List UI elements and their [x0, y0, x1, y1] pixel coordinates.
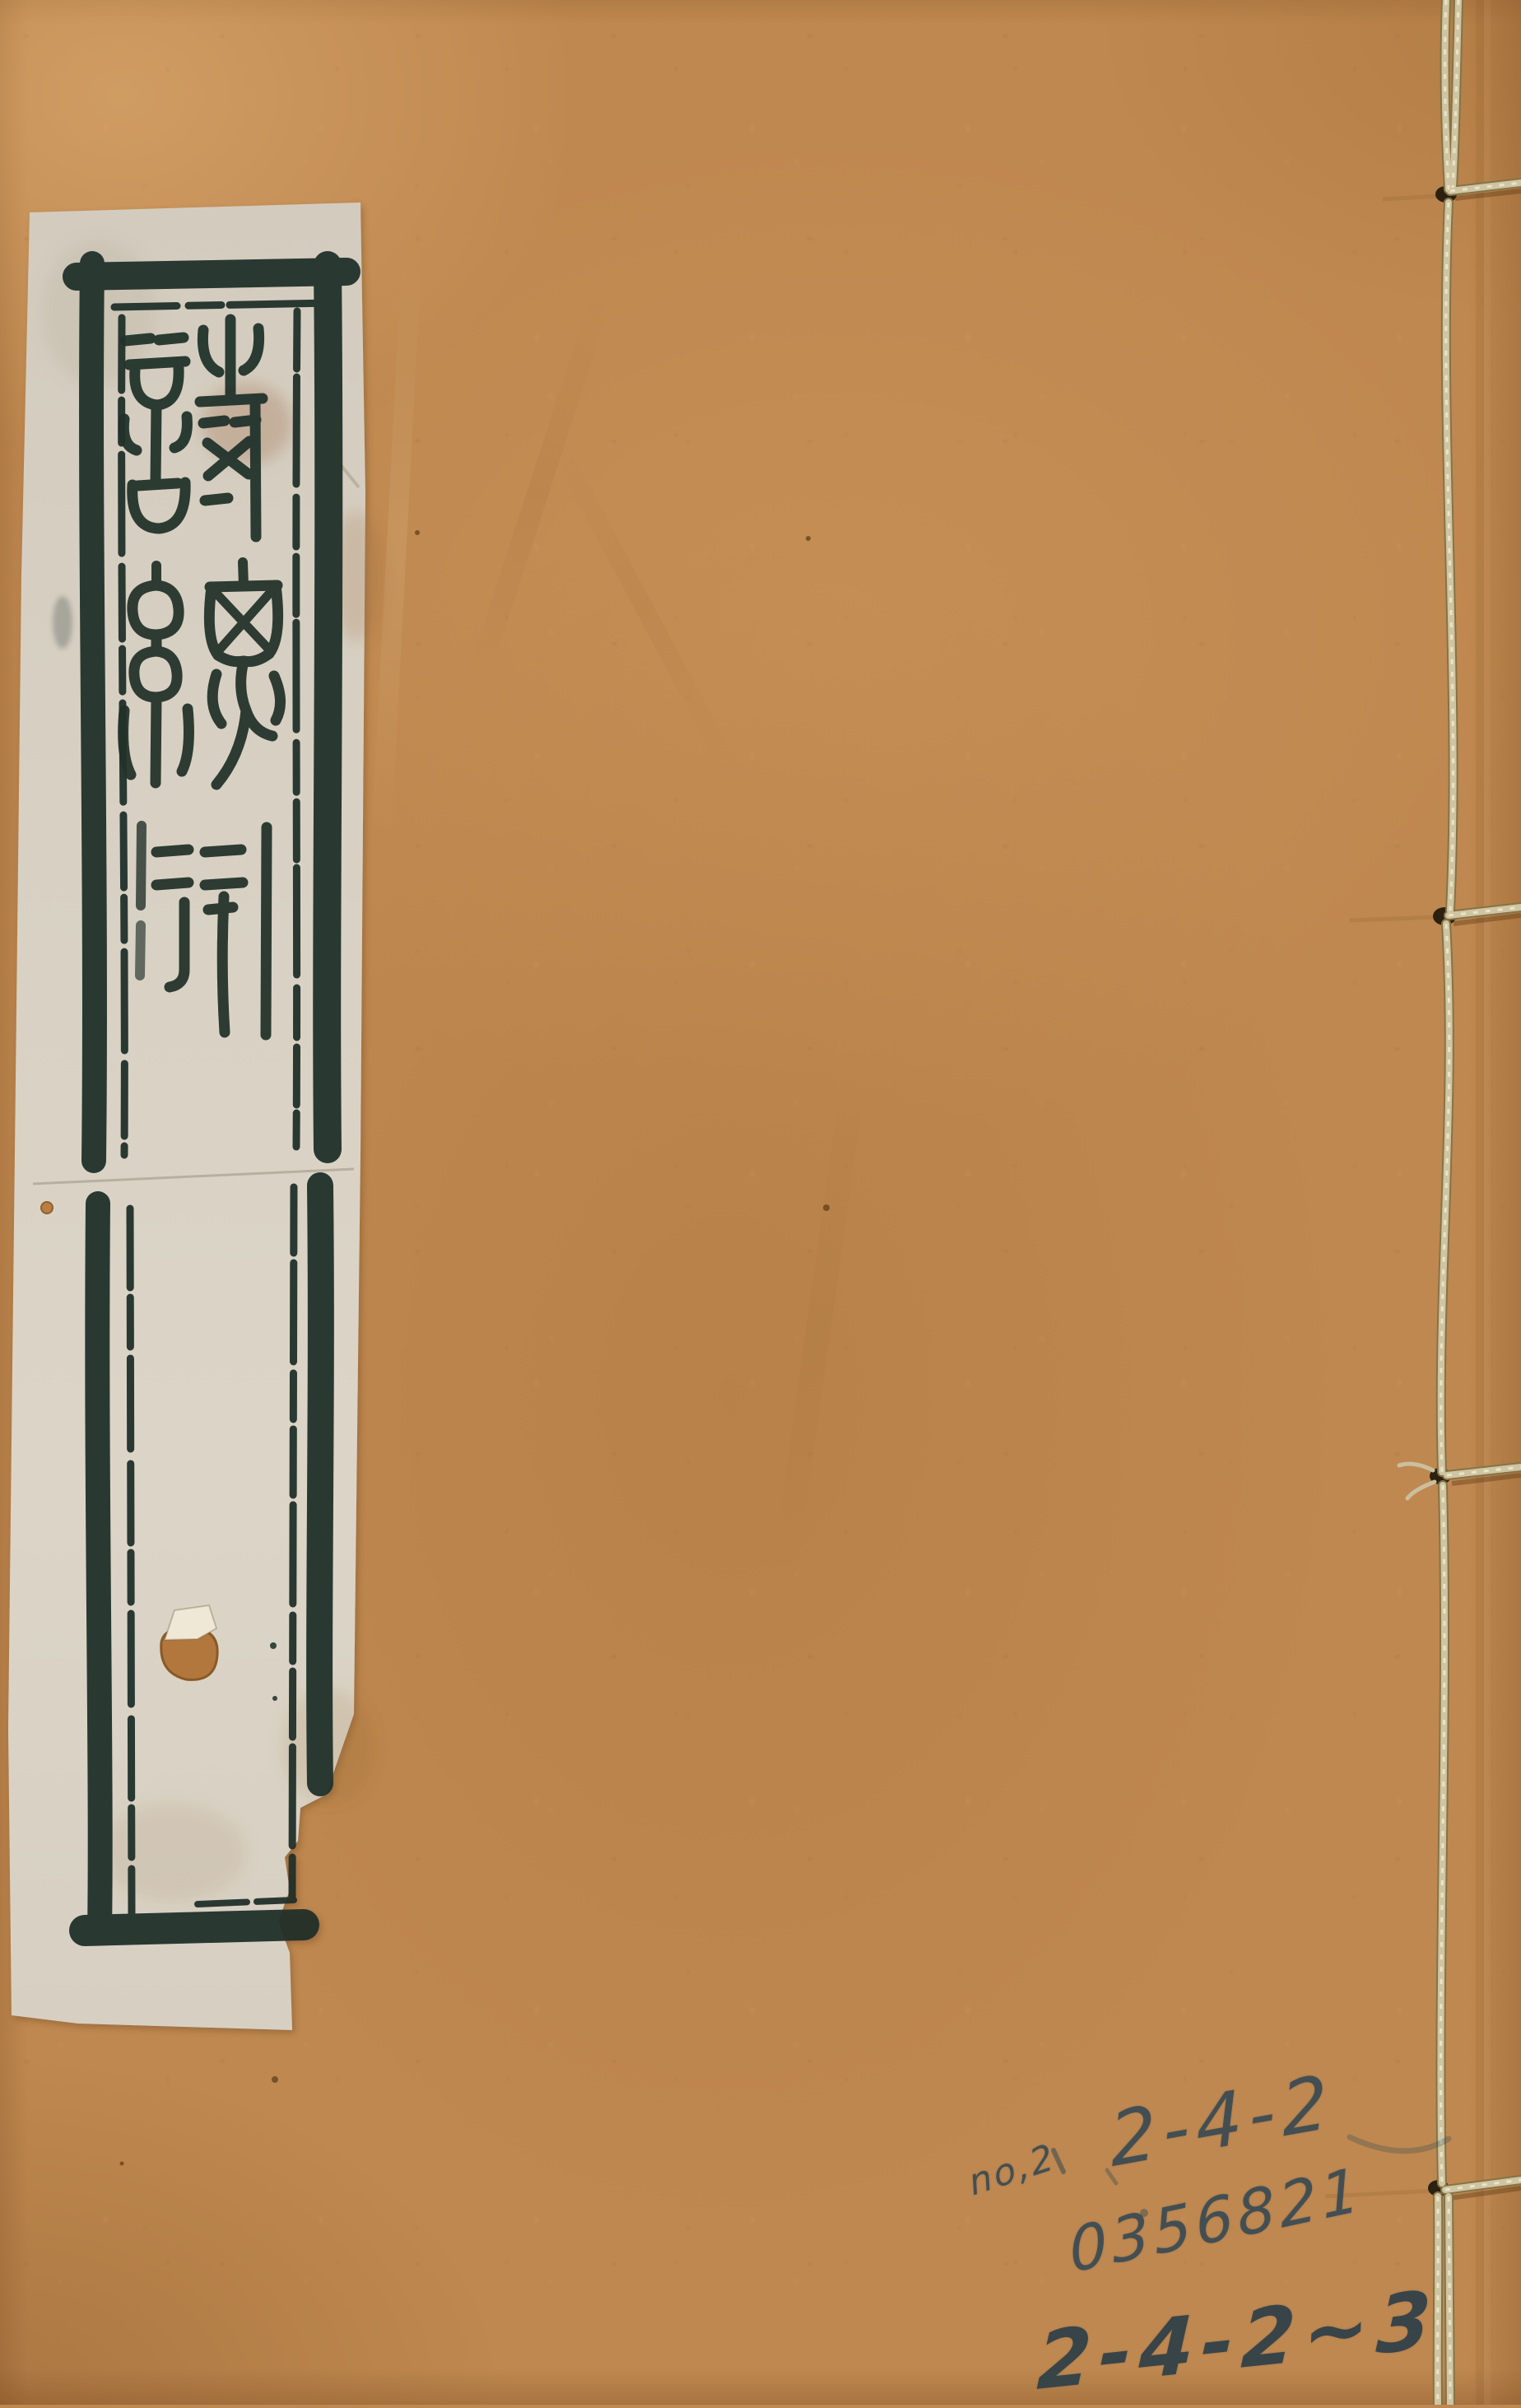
spine-crease: [1325, 0, 1491, 2405]
label-wormhole: [41, 1202, 53, 1213]
knot-fray: [1399, 1464, 1435, 1498]
title-label: [8, 203, 380, 2030]
label-ink-smudge: [53, 596, 72, 649]
cover-artwork-layer: [0, 0, 1521, 2405]
binding-thread: [1399, 0, 1521, 2405]
